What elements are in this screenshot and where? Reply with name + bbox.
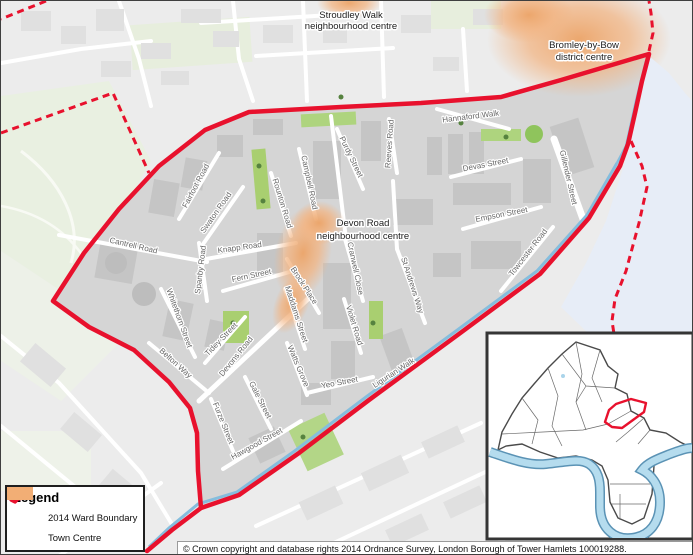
bromley-by-bow-label: Bromley-by-Bow (549, 40, 619, 51)
copyright-text: © Crown copyright and database rights 20… (178, 544, 627, 554)
copyright-bar: © Crown copyright and database rights 20… (177, 541, 693, 555)
map-svg: Cantrell Road Fairfoot Road Swaton Road … (1, 1, 693, 555)
legend-item-town-centre: Town Centre (13, 528, 137, 548)
legend-item-ward-boundary: 2014 Ward Boundary (13, 508, 137, 528)
stroudley-walk-label: Stroudley Walk (319, 10, 383, 21)
stroudley-walk-label-line2: neighbourhood centre (305, 21, 397, 32)
legend-label-ward-boundary: 2014 Ward Boundary (48, 513, 137, 524)
bromley-by-bow-label-line2: district centre (556, 52, 613, 63)
devon-road-label: Devon Road (337, 218, 390, 229)
legend-label-town-centre: Town Centre (48, 533, 101, 544)
inset-map (487, 333, 693, 539)
legend-box: Legend 2014 Ward Boundary Town Centre (5, 485, 145, 552)
map-frame: Cantrell Road Fairfoot Road Swaton Road … (0, 0, 693, 555)
devon-road-label-line2: neighbourhood centre (317, 231, 409, 242)
